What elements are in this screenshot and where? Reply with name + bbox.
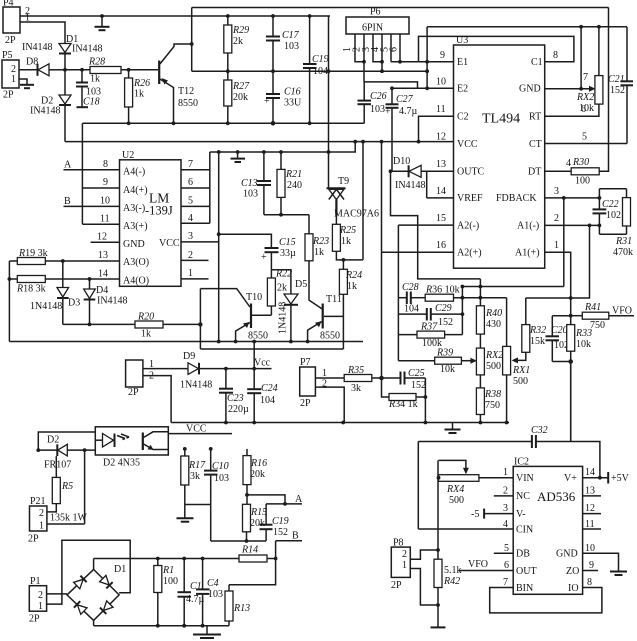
svg-text:4: 4 <box>566 158 571 169</box>
svg-text:1N4148: 1N4148 <box>278 302 289 334</box>
svg-text:152: 152 <box>273 527 288 538</box>
svg-text:IN4148: IN4148 <box>22 42 53 53</box>
svg-text:7: 7 <box>188 159 193 170</box>
svg-text:6PIN: 6PIN <box>362 23 383 34</box>
svg-text:2P: 2P <box>391 580 402 591</box>
svg-text:P1: P1 <box>30 576 41 587</box>
svg-text:240: 240 <box>287 180 302 191</box>
svg-text:1: 1 <box>554 240 559 251</box>
svg-text:D5: D5 <box>295 279 307 290</box>
svg-text:103: 103 <box>370 104 385 115</box>
svg-text:OUT: OUT <box>516 566 537 577</box>
svg-text:1k: 1k <box>314 247 324 258</box>
svg-text:T9: T9 <box>338 176 349 187</box>
svg-text:6: 6 <box>504 560 509 571</box>
svg-text:1: 1 <box>38 601 43 612</box>
svg-text:VCC: VCC <box>159 238 180 249</box>
svg-text:102: 102 <box>606 210 621 221</box>
svg-text:R5: R5 <box>61 481 73 492</box>
svg-text:R1: R1 <box>162 565 174 576</box>
svg-text:R37: R37 <box>420 322 438 333</box>
svg-text:12: 12 <box>97 232 107 243</box>
svg-text:P5: P5 <box>2 50 13 61</box>
svg-text:D1: D1 <box>114 564 126 575</box>
svg-text:10: 10 <box>436 77 446 88</box>
svg-text:10k: 10k <box>576 339 591 350</box>
svg-text:R29: R29 <box>232 25 249 36</box>
svg-text:103: 103 <box>208 589 223 600</box>
svg-text:13: 13 <box>585 486 595 497</box>
svg-text:R34 1k: R34 1k <box>388 399 418 410</box>
svg-text:VFO: VFO <box>612 306 632 317</box>
svg-text:R39: R39 <box>436 348 453 359</box>
svg-text:R20: R20 <box>137 312 154 323</box>
svg-text:5: 5 <box>582 132 587 143</box>
svg-text:1k: 1k <box>90 74 100 85</box>
svg-text:CT: CT <box>529 139 542 150</box>
svg-text:1: 1 <box>503 467 508 478</box>
svg-text:2: 2 <box>402 549 407 560</box>
svg-text:6: 6 <box>389 47 400 52</box>
svg-text:430: 430 <box>486 319 501 330</box>
svg-text:E2: E2 <box>457 84 468 95</box>
svg-text:2: 2 <box>503 486 508 497</box>
svg-text:R26: R26 <box>133 78 150 89</box>
svg-text:5.1k: 5.1k <box>444 565 462 576</box>
svg-text:D3: D3 <box>68 298 80 309</box>
svg-text:C23: C23 <box>227 393 244 404</box>
svg-text:9: 9 <box>103 177 108 188</box>
svg-text:C24: C24 <box>261 383 278 394</box>
svg-text:R23: R23 <box>312 236 329 247</box>
svg-text:P8: P8 <box>393 538 404 549</box>
svg-text:135k 1W: 135k 1W <box>50 513 88 524</box>
svg-text:P7: P7 <box>300 357 311 368</box>
svg-text:C10: C10 <box>212 461 229 472</box>
svg-text:2P: 2P <box>300 398 311 409</box>
svg-text:R14: R14 <box>241 545 258 556</box>
svg-text:R42: R42 <box>443 576 460 587</box>
svg-text:152: 152 <box>438 317 453 328</box>
svg-text:14: 14 <box>436 186 446 197</box>
svg-text:A2(+): A2(+) <box>457 248 482 259</box>
svg-text:2P: 2P <box>128 387 139 398</box>
svg-text:D9: D9 <box>183 351 195 362</box>
svg-text:R24: R24 <box>345 270 362 281</box>
svg-text:D2 4N35: D2 4N35 <box>103 458 140 469</box>
svg-text:B: B <box>64 196 71 207</box>
svg-text:RX1: RX1 <box>512 365 530 376</box>
svg-text:DB: DB <box>516 549 530 560</box>
svg-text:500: 500 <box>513 376 528 387</box>
svg-text:5: 5 <box>188 196 193 207</box>
svg-text:VCC: VCC <box>186 424 207 435</box>
svg-text:+: + <box>261 252 267 263</box>
svg-text:BIN: BIN <box>516 583 533 594</box>
svg-text:C26: C26 <box>370 91 387 102</box>
svg-text:A4(O): A4(O) <box>123 276 149 287</box>
svg-text:R30: R30 <box>572 157 589 168</box>
svg-text:20k: 20k <box>250 469 265 480</box>
svg-text:R25: R25 <box>339 225 356 236</box>
svg-text:8: 8 <box>587 577 592 588</box>
svg-text:2: 2 <box>38 590 43 601</box>
svg-text:R18 3k: R18 3k <box>16 284 46 295</box>
svg-text:R38: R38 <box>484 389 501 400</box>
svg-text:220µ: 220µ <box>228 404 249 415</box>
svg-text:750: 750 <box>590 320 605 331</box>
svg-text:C2: C2 <box>457 112 469 123</box>
svg-text:RX2: RX2 <box>485 350 503 361</box>
svg-text:C28: C28 <box>402 282 419 293</box>
svg-text:A1(-): A1(-) <box>517 221 539 232</box>
svg-text:470k: 470k <box>613 247 633 258</box>
svg-text:GND: GND <box>123 239 145 250</box>
svg-text:VCC: VCC <box>457 139 478 150</box>
svg-text:103: 103 <box>243 189 258 200</box>
svg-text:IO: IO <box>568 583 579 594</box>
svg-text:IN4148: IN4148 <box>30 106 61 117</box>
svg-text:MAC97A6: MAC97A6 <box>334 209 379 220</box>
svg-text:2P: 2P <box>28 534 39 545</box>
svg-text:1: 1 <box>11 74 16 85</box>
svg-text:9: 9 <box>440 50 445 61</box>
svg-text:3: 3 <box>503 503 508 514</box>
svg-text:C15: C15 <box>279 237 296 248</box>
svg-text:12: 12 <box>436 132 446 143</box>
svg-text:4.7µ: 4.7µ <box>186 594 205 605</box>
svg-text:103: 103 <box>284 41 299 52</box>
svg-text:104: 104 <box>313 66 328 77</box>
svg-text:2k: 2k <box>233 36 243 47</box>
svg-text:9: 9 <box>589 560 594 571</box>
svg-text:8: 8 <box>103 159 108 170</box>
svg-text:C18: C18 <box>83 97 100 108</box>
svg-text:R36 10k: R36 10k <box>425 285 460 296</box>
svg-text:104: 104 <box>260 395 275 406</box>
svg-text:A4(+): A4(+) <box>123 185 148 196</box>
svg-text:6: 6 <box>188 177 193 188</box>
svg-text:1N4148: 1N4148 <box>30 301 62 312</box>
svg-text:33U: 33U <box>284 98 302 109</box>
svg-text:TL494: TL494 <box>482 112 520 127</box>
svg-text:10: 10 <box>585 543 595 554</box>
svg-text:D10: D10 <box>393 156 410 167</box>
svg-text:C22: C22 <box>602 199 619 210</box>
svg-text:R28: R28 <box>88 57 105 68</box>
svg-text:2P: 2P <box>3 90 14 101</box>
svg-text:IN4148: IN4148 <box>72 44 103 55</box>
svg-text:1k: 1k <box>341 236 351 247</box>
svg-text:D2: D2 <box>47 435 59 446</box>
svg-text:T12: T12 <box>178 86 194 97</box>
svg-text:C21: C21 <box>608 74 625 85</box>
svg-text:D8: D8 <box>26 57 38 68</box>
svg-text:8550: 8550 <box>320 331 340 342</box>
svg-text:4: 4 <box>503 519 508 530</box>
svg-text:GND: GND <box>556 549 578 560</box>
svg-text:11: 11 <box>436 104 446 115</box>
svg-text:T10: T10 <box>246 292 262 303</box>
svg-text:CIN: CIN <box>516 525 533 536</box>
svg-text:R21: R21 <box>285 169 302 180</box>
svg-text:14: 14 <box>585 467 595 478</box>
svg-text:4: 4 <box>188 213 193 224</box>
svg-text:500: 500 <box>486 361 501 372</box>
svg-text:1N4148: 1N4148 <box>180 380 212 391</box>
svg-text:R31: R31 <box>615 236 632 247</box>
svg-text:B: B <box>292 531 299 542</box>
svg-text:14: 14 <box>98 269 108 280</box>
svg-text:A2(-): A2(-) <box>457 221 479 232</box>
svg-text:15: 15 <box>436 213 446 224</box>
svg-text:4.7µ: 4.7µ <box>399 106 418 117</box>
svg-text:U3: U3 <box>456 35 468 46</box>
svg-text:C13: C13 <box>241 178 258 189</box>
svg-text:2P: 2P <box>29 614 40 625</box>
svg-text:AD536: AD536 <box>537 489 576 504</box>
svg-text:C20: C20 <box>551 325 568 336</box>
svg-text:ZO: ZO <box>566 566 579 577</box>
svg-text:DT: DT <box>528 167 541 178</box>
svg-text:R40: R40 <box>485 308 502 319</box>
svg-text:C32: C32 <box>531 425 548 436</box>
svg-text:8: 8 <box>553 50 558 61</box>
svg-text:5: 5 <box>504 543 509 554</box>
svg-text:NC: NC <box>516 491 530 502</box>
svg-text:3k: 3k <box>190 471 200 482</box>
svg-text:2P: 2P <box>5 35 16 46</box>
svg-text:3: 3 <box>554 186 559 197</box>
svg-text:V-: V- <box>516 509 526 520</box>
svg-text:A3(O): A3(O) <box>123 257 149 268</box>
svg-text:3: 3 <box>188 231 193 242</box>
svg-text:R32: R32 <box>529 325 546 336</box>
svg-text:2: 2 <box>554 213 559 224</box>
svg-text:E1: E1 <box>457 57 468 68</box>
svg-text:Vcc: Vcc <box>254 358 271 369</box>
svg-text:2: 2 <box>39 508 44 519</box>
svg-text:1: 1 <box>188 268 193 279</box>
svg-text:15k: 15k <box>530 336 545 347</box>
svg-text:2: 2 <box>188 250 193 261</box>
svg-text:10k: 10k <box>579 103 594 114</box>
svg-text:GND: GND <box>519 84 541 95</box>
svg-text:8550: 8550 <box>178 98 198 109</box>
svg-text:152: 152 <box>610 85 625 96</box>
svg-text:100: 100 <box>575 176 590 187</box>
svg-text:1: 1 <box>322 368 327 379</box>
svg-text:C4: C4 <box>207 578 219 589</box>
svg-text:8550: 8550 <box>248 331 268 342</box>
svg-text:10k: 10k <box>440 364 455 375</box>
svg-text:P21: P21 <box>30 496 46 507</box>
svg-text:-5: -5 <box>471 509 479 520</box>
svg-text:C27: C27 <box>396 94 414 105</box>
svg-text:R17: R17 <box>188 460 206 471</box>
svg-text:1: 1 <box>402 560 407 571</box>
svg-text:RT: RT <box>529 112 541 123</box>
svg-text:+: + <box>385 107 391 118</box>
svg-text:-139J: -139J <box>145 204 173 218</box>
svg-text:RX4: RX4 <box>446 484 464 495</box>
svg-text:R35: R35 <box>347 365 364 376</box>
svg-text:C19: C19 <box>272 516 289 527</box>
svg-text:33µ: 33µ <box>280 248 296 259</box>
svg-text:FDBACK: FDBACK <box>496 193 537 204</box>
svg-text:P4: P4 <box>3 0 14 9</box>
svg-text:13: 13 <box>436 159 446 170</box>
svg-text:A: A <box>295 494 303 505</box>
svg-text:C1: C1 <box>531 57 543 68</box>
svg-text:1k: 1k <box>141 329 151 340</box>
svg-text:A: A <box>64 160 72 171</box>
svg-text:R19 3k: R19 3k <box>18 248 48 259</box>
svg-text:R15: R15 <box>250 507 267 518</box>
svg-text:500: 500 <box>449 495 464 506</box>
svg-text:13: 13 <box>98 250 108 261</box>
svg-text:R27: R27 <box>232 81 250 92</box>
svg-text:12: 12 <box>585 503 595 514</box>
svg-text:IC2: IC2 <box>514 457 529 468</box>
svg-text:T11: T11 <box>326 294 342 305</box>
svg-text:C16: C16 <box>284 87 301 98</box>
svg-text:C19: C19 <box>312 54 329 65</box>
svg-text:750: 750 <box>485 400 500 411</box>
svg-text:7: 7 <box>583 72 588 83</box>
svg-text:V+: V+ <box>564 473 577 484</box>
svg-text:FR107: FR107 <box>44 460 71 471</box>
svg-text:20k: 20k <box>250 518 265 529</box>
svg-text:A3(+): A3(+) <box>123 221 148 232</box>
svg-text:VREF: VREF <box>457 193 483 204</box>
svg-text:A1(+): A1(+) <box>515 248 540 259</box>
svg-text:104: 104 <box>404 304 419 315</box>
svg-text:U2: U2 <box>122 150 134 161</box>
svg-text:R41: R41 <box>584 302 601 313</box>
svg-text:100: 100 <box>163 576 178 587</box>
svg-text:IN4148: IN4148 <box>395 180 426 191</box>
svg-text:+5V: +5V <box>611 473 630 484</box>
svg-text:D4: D4 <box>96 285 108 296</box>
svg-text:103: 103 <box>214 473 229 484</box>
svg-text:152: 152 <box>411 380 426 391</box>
svg-text:1k: 1k <box>347 281 357 292</box>
svg-text:20k: 20k <box>233 92 248 103</box>
svg-text:A4(-): A4(-) <box>123 167 145 178</box>
svg-text:IN4148: IN4148 <box>97 296 128 307</box>
svg-text:VIN: VIN <box>516 473 534 484</box>
svg-text:P6: P6 <box>370 7 381 18</box>
svg-text:11: 11 <box>100 214 110 225</box>
svg-text:+: + <box>264 96 270 107</box>
svg-text:A3(-): A3(-) <box>123 203 145 214</box>
svg-text:VFO: VFO <box>468 559 488 570</box>
svg-text:2k: 2k <box>277 283 287 294</box>
svg-text:3k: 3k <box>351 383 361 394</box>
svg-text:C29: C29 <box>435 303 452 314</box>
svg-text:7: 7 <box>503 577 508 588</box>
svg-text:1k: 1k <box>134 89 144 100</box>
svg-text:C25: C25 <box>408 368 425 379</box>
svg-text:OUTC: OUTC <box>457 167 485 178</box>
svg-text:16: 16 <box>436 240 446 251</box>
svg-text:1: 1 <box>39 521 44 532</box>
svg-text:R13: R13 <box>233 603 250 614</box>
svg-text:RX2: RX2 <box>576 92 594 103</box>
svg-text:C17: C17 <box>282 30 300 41</box>
svg-text:10: 10 <box>100 196 110 207</box>
svg-text:R16: R16 <box>250 458 267 469</box>
